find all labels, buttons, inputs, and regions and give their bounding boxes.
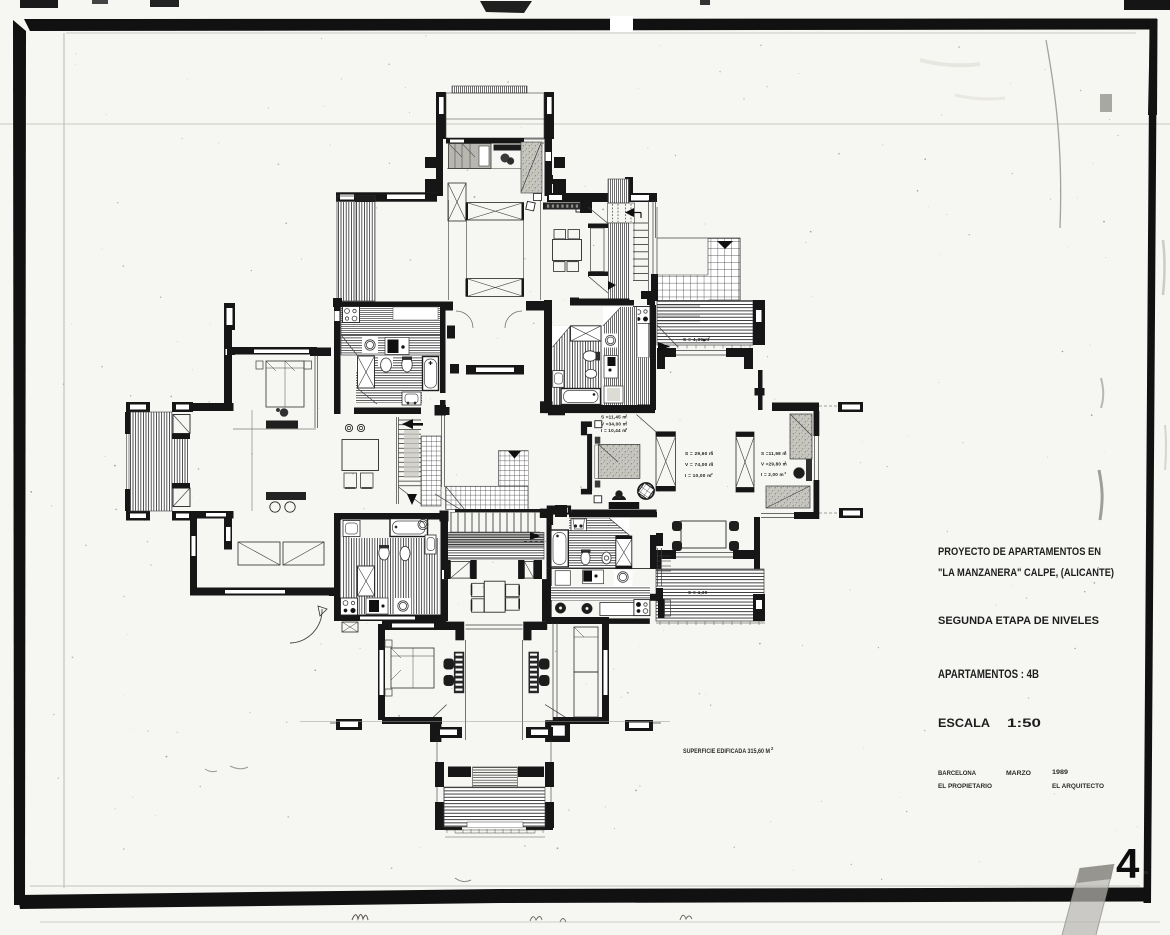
svg-text:EL PROPIETARIO: EL PROPIETARIO <box>938 783 992 790</box>
svg-text:S = 4,39: S = 4,39 <box>688 590 708 595</box>
svg-text:S =11,98 m: S =11,98 m <box>761 451 787 456</box>
svg-text:V =34,00 m: V =34,00 m <box>601 422 627 427</box>
svg-text:MARZO: MARZO <box>1006 770 1031 777</box>
svg-text:APARTAMENTOS : 4B: APARTAMENTOS : 4B <box>938 667 1039 681</box>
svg-text:1989: 1989 <box>1052 769 1068 776</box>
svg-text:BARCELONA: BARCELONA <box>938 770 976 777</box>
svg-text:S =11,45 m: S =11,45 m <box>601 415 627 420</box>
svg-text:V =29,80 m: V =29,80 m <box>761 462 787 467</box>
svg-text:EL ARQUITECTO: EL ARQUITECTO <box>1052 783 1104 790</box>
svg-text:"LA MANZANERA" CALPE, (ALICANT: "LA MANZANERA" CALPE, (ALICANTE) <box>938 567 1114 579</box>
svg-text:V = 74,00 m: V = 74,00 m <box>685 462 713 468</box>
svg-text:ESCALA: ESCALA <box>938 716 990 730</box>
svg-text:SEGUNDA ETAPA DE NIVELES: SEGUNDA ETAPA DE NIVELES <box>938 615 1099 627</box>
svg-text:S = 29,60 m: S = 29,60 m <box>685 451 713 457</box>
svg-text:1:50: 1:50 <box>1007 716 1042 730</box>
svg-text:SUPERFICIE EDIFICADA 315,60: SUPERFICIE EDIFICADA 315,60 M <box>683 748 770 755</box>
svg-text:I = 10,00 m: I = 10,00 m <box>685 473 712 479</box>
svg-text:2: 2 <box>708 336 710 340</box>
svg-text:I = 10,44 m: I = 10,44 m <box>601 428 627 433</box>
svg-text:I = 2,00 m: I = 2,00 m <box>761 472 784 477</box>
svg-text:PROYECTO DE APARTAMENTOS EN: PROYECTO DE APARTAMENTOS EN <box>938 546 1101 558</box>
svg-text:4: 4 <box>1116 840 1140 887</box>
svg-text:S = 4,39 m: S = 4,39 m <box>683 337 710 343</box>
